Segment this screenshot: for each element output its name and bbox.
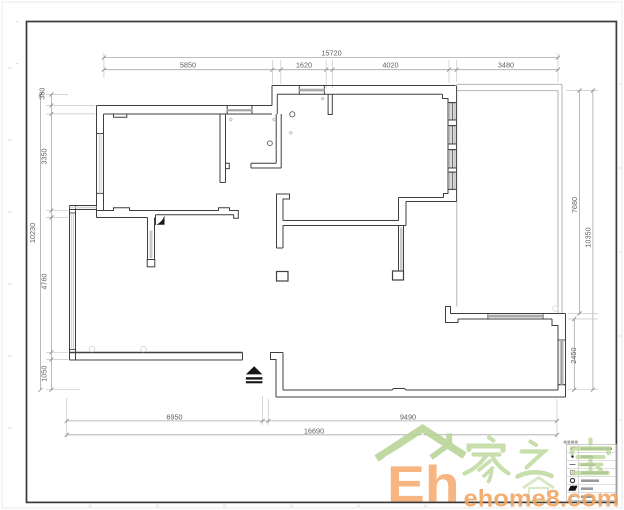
svg-text:4020: 4020 — [382, 60, 398, 69]
svg-text:6950: 6950 — [166, 412, 182, 421]
svg-text:3480: 3480 — [498, 60, 514, 69]
svg-text:Eh: Eh — [387, 456, 460, 510]
svg-text:1050: 1050 — [40, 366, 49, 382]
svg-text:7680: 7680 — [570, 197, 579, 213]
svg-text:16690: 16690 — [304, 427, 324, 436]
svg-text:3350: 3350 — [40, 148, 49, 164]
svg-text:15720: 15720 — [321, 49, 341, 58]
svg-text:10350: 10350 — [584, 227, 593, 247]
svg-text:2450: 2450 — [569, 347, 578, 363]
svg-text:17: 17 — [490, 503, 495, 508]
svg-text:1620: 1620 — [296, 60, 312, 69]
svg-text:9490: 9490 — [400, 412, 416, 421]
svg-text:4760: 4760 — [40, 273, 49, 289]
svg-text:16: 16 — [423, 503, 428, 508]
svg-text:5850: 5850 — [180, 60, 196, 69]
svg-text:10230: 10230 — [28, 223, 37, 243]
svg-text:14: 14 — [289, 503, 294, 508]
svg-text:15: 15 — [356, 503, 361, 508]
svg-text:380: 380 — [38, 88, 47, 100]
svg-text:ehome8.com: ehome8.com — [464, 486, 620, 510]
svg-text:12: 12 — [155, 503, 160, 508]
svg-text:13: 13 — [222, 503, 227, 508]
